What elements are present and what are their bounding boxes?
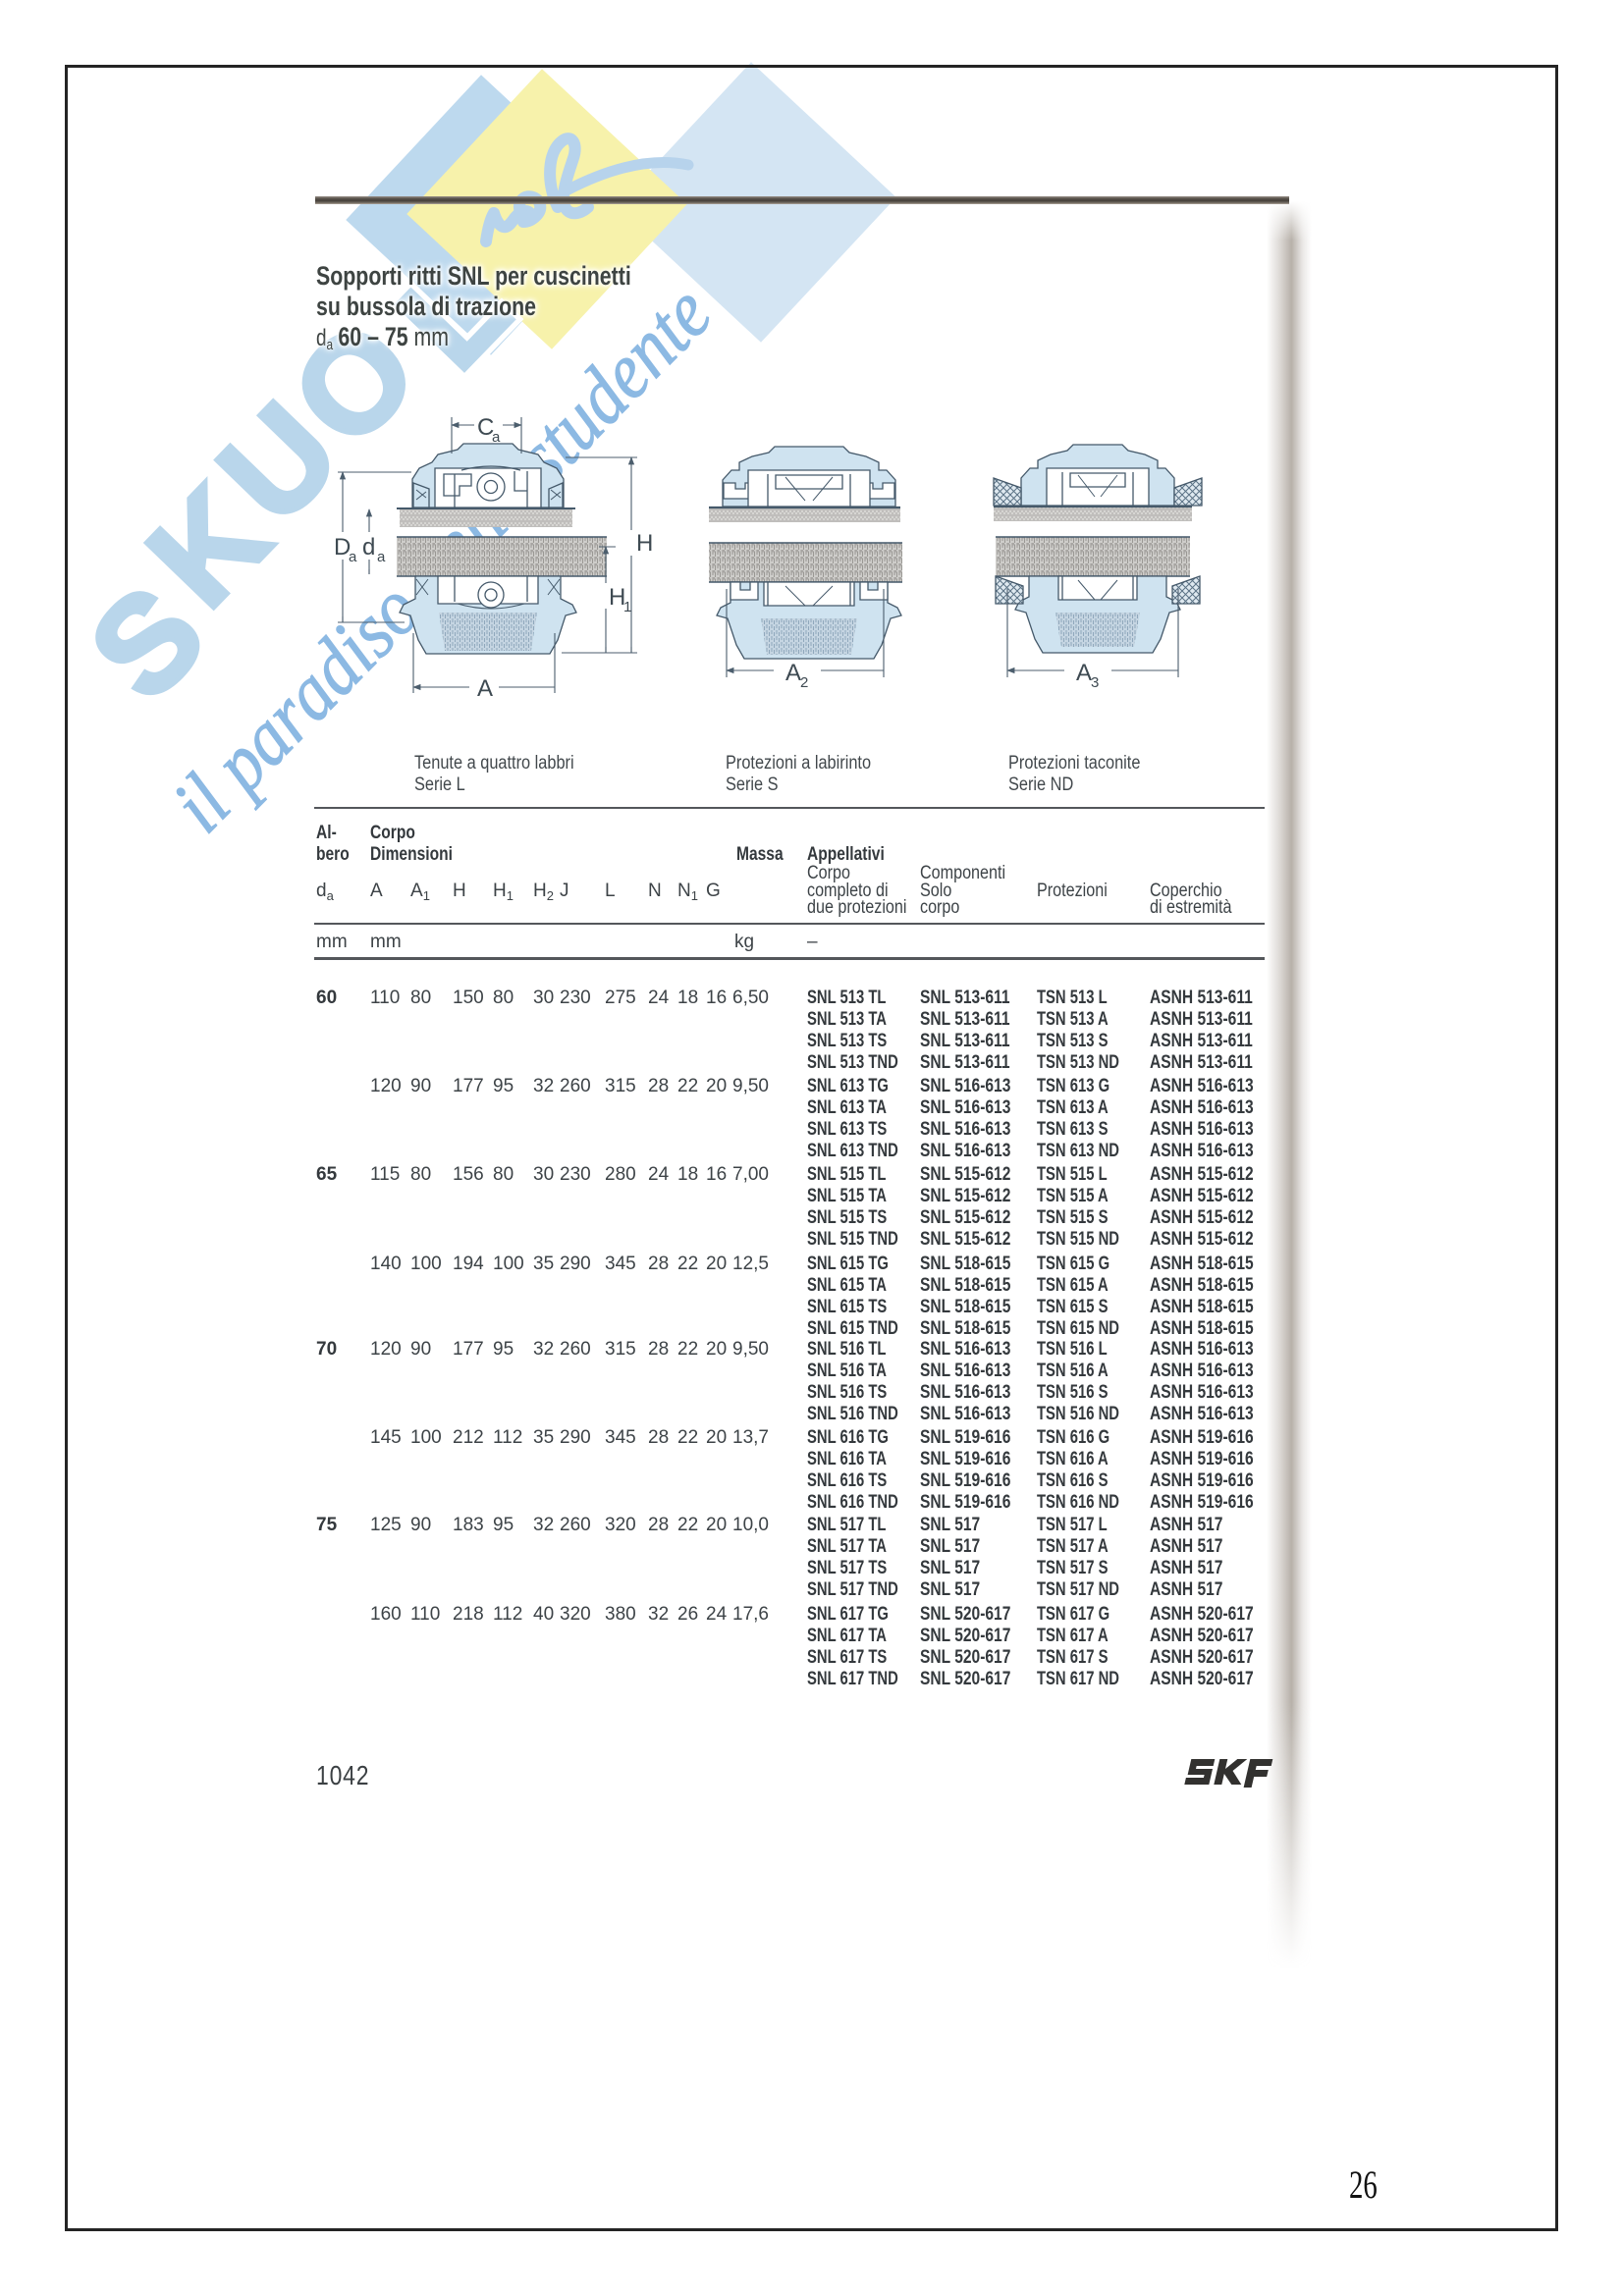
svg-text:A: A xyxy=(1076,660,1092,686)
svg-text:d: d xyxy=(362,534,375,561)
svg-text:a: a xyxy=(492,429,501,446)
svg-text:H: H xyxy=(636,530,653,557)
svg-text:A: A xyxy=(477,675,493,702)
svg-text:3: 3 xyxy=(1091,674,1099,691)
svg-text:a: a xyxy=(377,549,386,565)
svg-text:a: a xyxy=(349,549,357,565)
svg-text:A: A xyxy=(785,660,801,686)
svg-text:2: 2 xyxy=(800,674,808,691)
svg-text:1: 1 xyxy=(623,599,631,615)
